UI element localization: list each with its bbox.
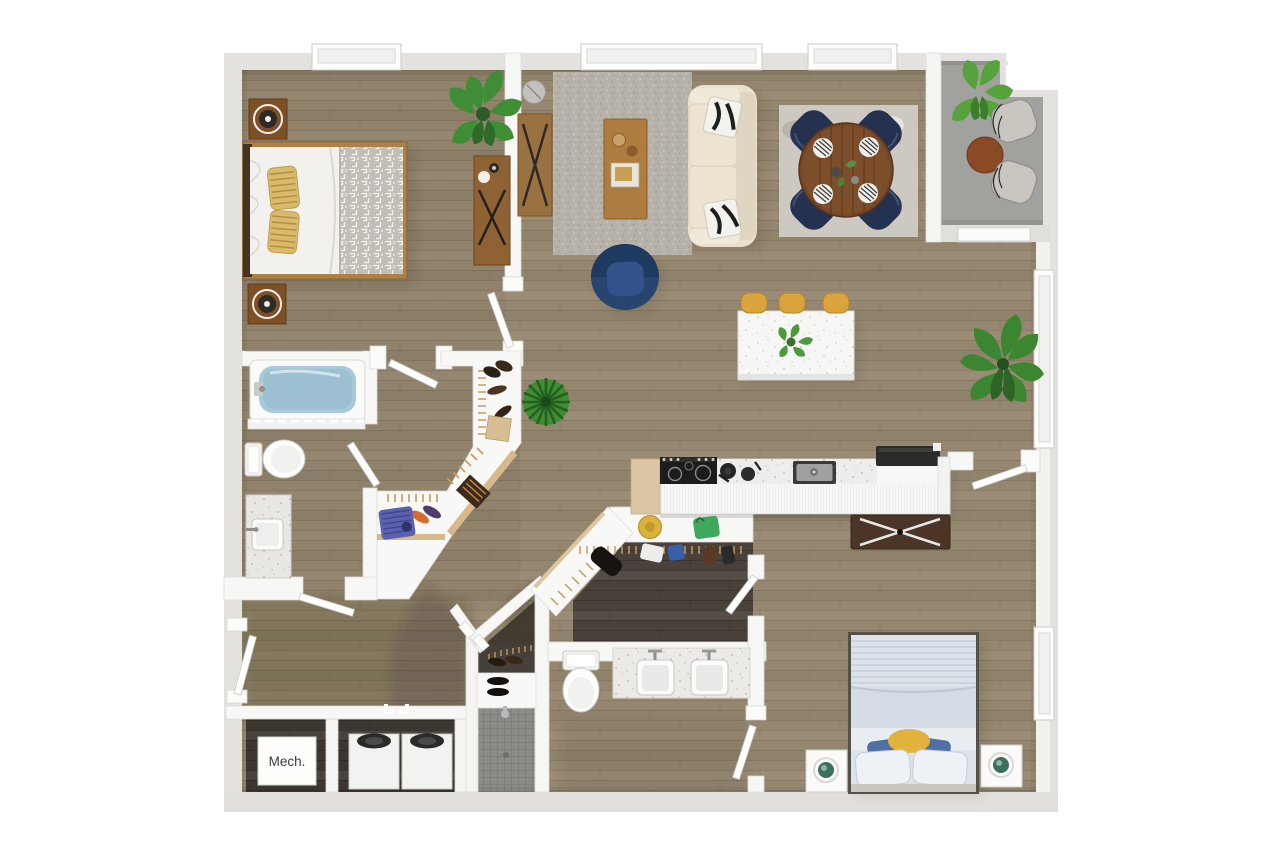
svg-text:Mech.: Mech. [269,754,306,769]
